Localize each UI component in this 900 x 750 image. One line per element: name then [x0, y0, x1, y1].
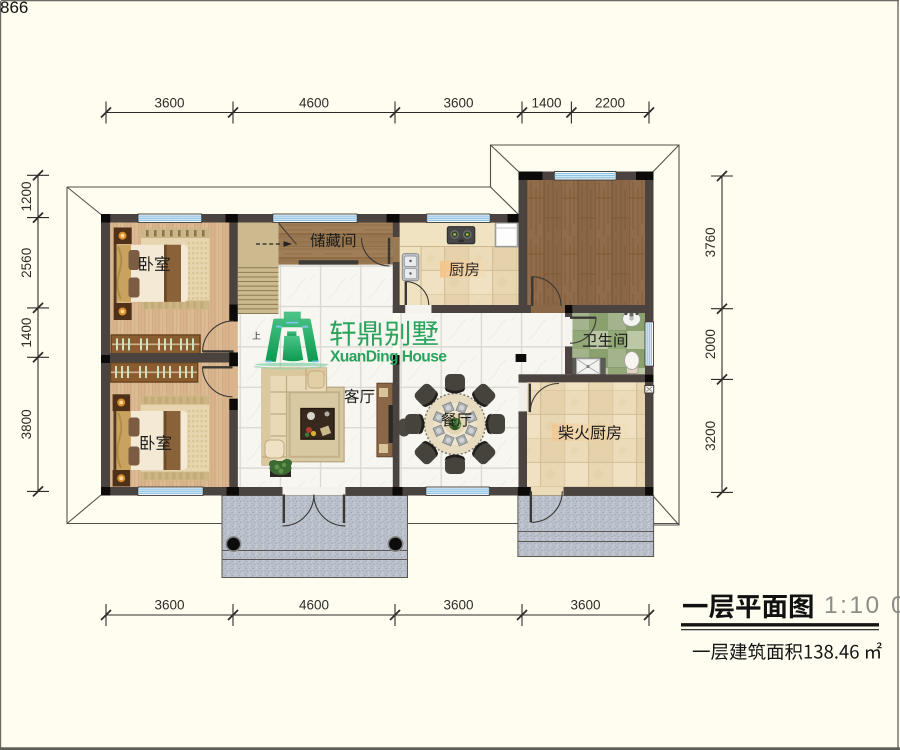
svg-text:3200: 3200	[703, 421, 718, 451]
svg-text:4600: 4600	[299, 96, 329, 111]
svg-text:2200: 2200	[595, 96, 625, 111]
svg-text:1:10 0: 1:10 0	[824, 592, 900, 619]
svg-text:3800: 3800	[19, 409, 34, 439]
svg-text:3600: 3600	[443, 96, 473, 111]
svg-text:1400: 1400	[531, 96, 561, 111]
svg-text:3600: 3600	[570, 598, 600, 613]
svg-text:2560: 2560	[19, 248, 34, 278]
svg-text:4600: 4600	[299, 598, 329, 613]
svg-text:1400: 1400	[19, 318, 34, 348]
svg-text:3600: 3600	[154, 598, 184, 613]
svg-text:866: 866	[0, 0, 28, 17]
svg-text:XuanDing House: XuanDing House	[330, 349, 447, 366]
svg-text:3600: 3600	[154, 96, 184, 111]
svg-text:2000: 2000	[703, 329, 718, 359]
svg-text:3760: 3760	[703, 227, 718, 257]
svg-text:3600: 3600	[443, 598, 473, 613]
svg-text:1200: 1200	[19, 181, 34, 211]
